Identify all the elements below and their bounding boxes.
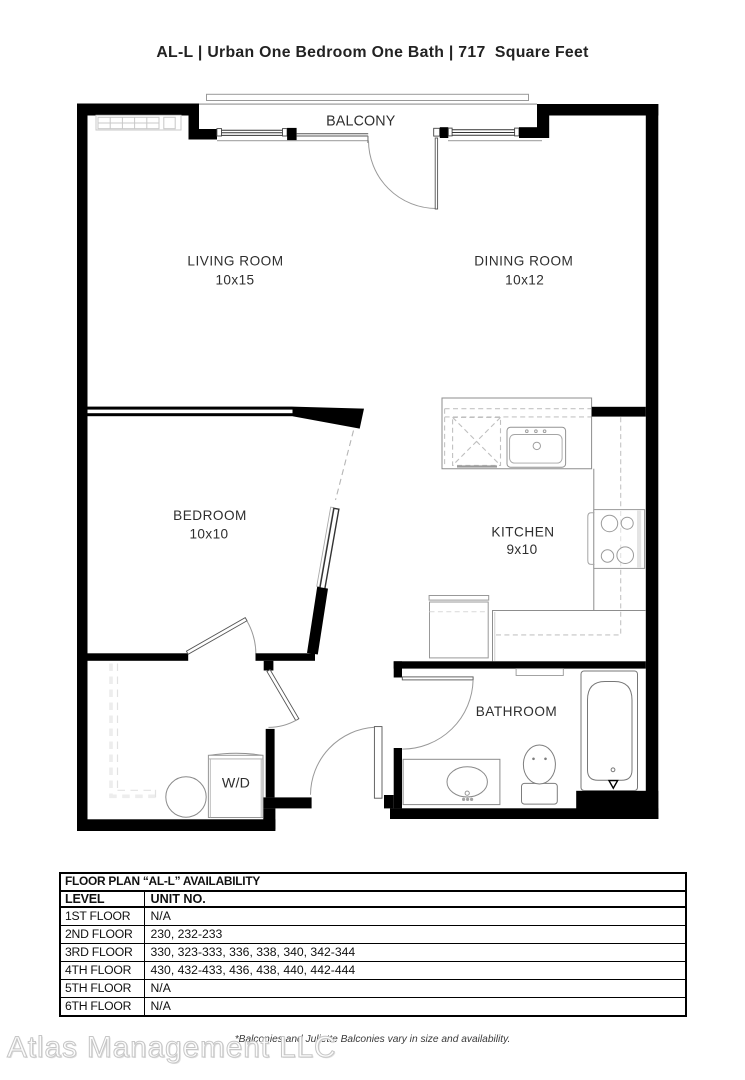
svg-text:BALCONY: BALCONY bbox=[326, 114, 396, 130]
svg-text:9x10: 9x10 bbox=[506, 542, 537, 557]
svg-text:10x12: 10x12 bbox=[505, 272, 544, 287]
svg-text:DINING ROOM: DINING ROOM bbox=[474, 254, 573, 269]
svg-text:BEDROOM: BEDROOM bbox=[173, 508, 247, 523]
svg-text:W/D: W/D bbox=[222, 776, 250, 792]
svg-text:KITCHEN: KITCHEN bbox=[491, 524, 554, 539]
svg-text:BATHROOM: BATHROOM bbox=[476, 704, 558, 719]
svg-text:10x10: 10x10 bbox=[189, 526, 228, 541]
svg-text:10x15: 10x15 bbox=[215, 272, 254, 287]
svg-text:LIVING ROOM: LIVING ROOM bbox=[187, 254, 283, 269]
